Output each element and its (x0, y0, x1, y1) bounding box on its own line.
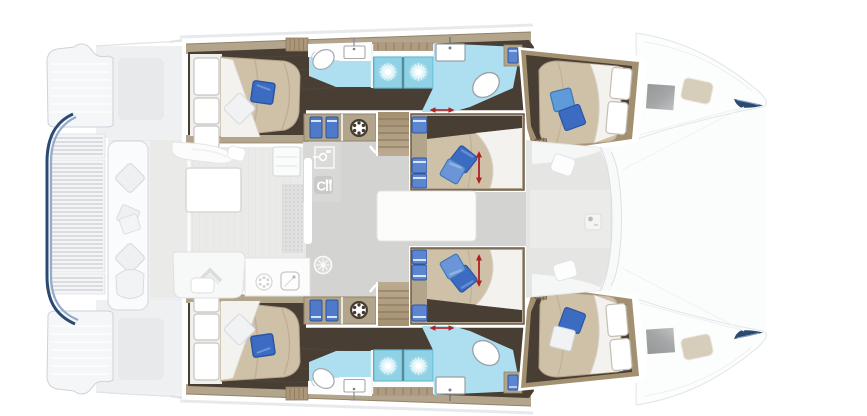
svg-text:C: C (317, 179, 327, 194)
